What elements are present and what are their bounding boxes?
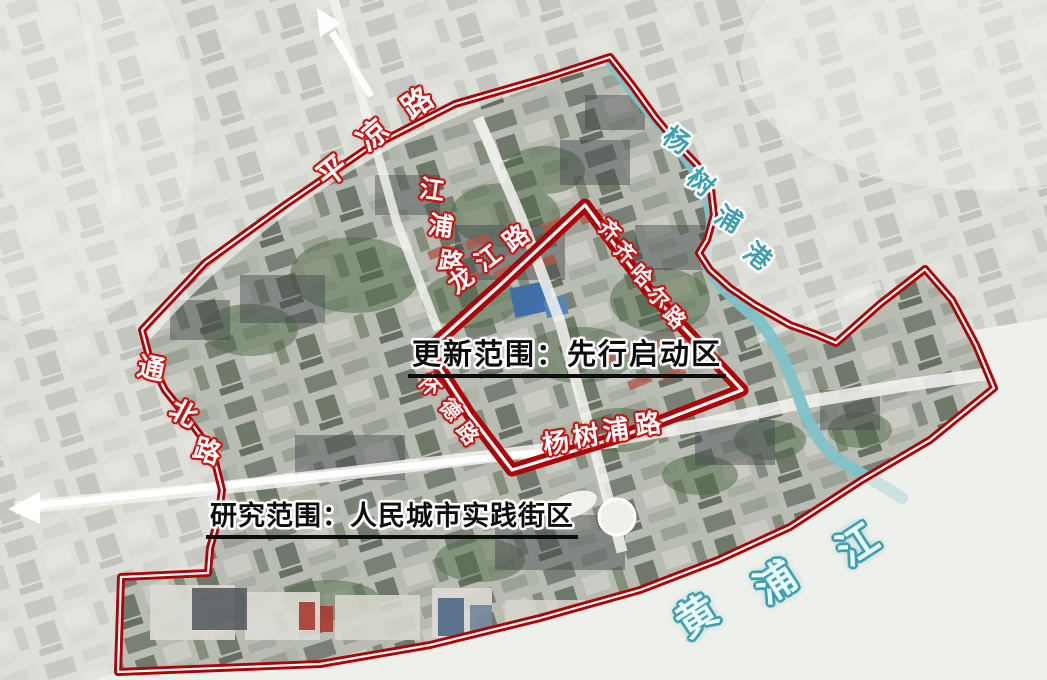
satellite-basemap [0, 0, 1047, 680]
map-canvas: 平凉路 江浦路 龙江路 齐齐哈尔路 怀德路 通北路 杨树浦路 杨树浦港 黄浦江 … [0, 0, 1047, 680]
